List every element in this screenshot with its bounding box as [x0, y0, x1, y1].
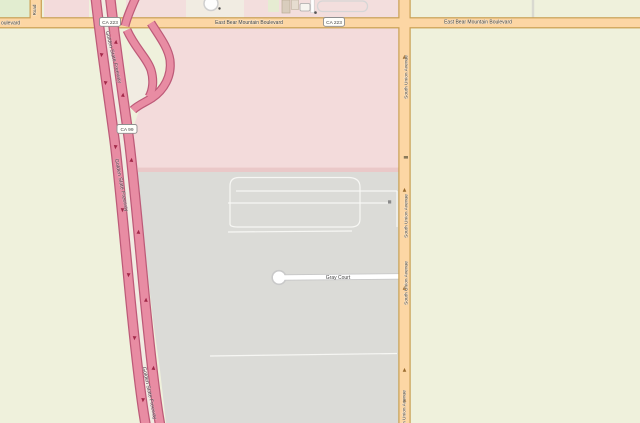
crossing-icon — [404, 156, 408, 159]
map-viewport[interactable]: CA 223 CA 223 CA 99 oulevard East Bear M… — [0, 0, 640, 423]
pink-area-top-strip — [126, 0, 399, 18]
gate-icon — [388, 200, 391, 203]
route-shield-ca99: CA 99 — [117, 125, 137, 134]
avenue-label-4: South Union Avenue — [402, 390, 408, 423]
avenue-label-1: South Union Avenue — [404, 55, 410, 99]
boulevard-label-2: East Bear Mountain Boulevard — [444, 20, 512, 26]
boulevard-label-1: East Bear Mountain Boulevard — [215, 20, 283, 26]
building — [300, 4, 310, 12]
avenue-label-2: South Union Avenue — [404, 194, 410, 238]
left-road-label: Road — [32, 4, 37, 15]
avenue-label-3: South Union Avenue — [404, 261, 410, 305]
map-canvas[interactable]: CA 223 CA 223 CA 99 oulevard East Bear M… — [0, 0, 640, 423]
route-shield-ca223-west: CA 223 — [100, 18, 121, 27]
pink-area-west — [44, 0, 89, 19]
building — [282, 0, 290, 13]
boulevard-label-partial: oulevard — [1, 20, 20, 26]
gate-icon — [314, 11, 317, 14]
quarry-area-gray — [137, 172, 399, 423]
industrial-area-pink — [133, 28, 399, 172]
shield-label: CA 223 — [102, 20, 118, 26]
gray-court-label: Gray Court — [326, 275, 351, 281]
shield-label: CA 223 — [326, 20, 342, 26]
green-plot — [268, 0, 279, 12]
pink-edge-strip — [138, 168, 399, 172]
route-shield-ca223-east: CA 223 — [324, 18, 345, 27]
gate-icon — [218, 7, 220, 9]
building — [292, 0, 299, 10]
shield-label: CA 99 — [120, 127, 133, 133]
